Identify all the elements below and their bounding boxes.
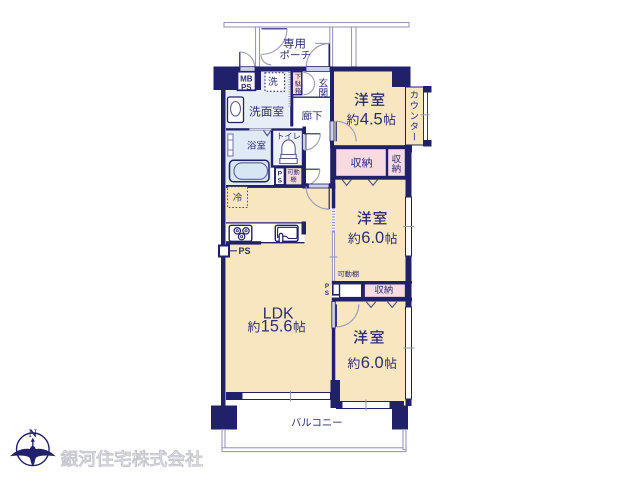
svg-text:PS: PS <box>241 83 252 92</box>
svg-text:PS: PS <box>239 246 251 256</box>
svg-text:S: S <box>278 178 283 185</box>
svg-text:P: P <box>325 283 329 290</box>
svg-text:S: S <box>325 290 329 297</box>
svg-text:6.0: 6.0 <box>361 229 384 247</box>
svg-text:N: N <box>29 428 38 440</box>
svg-text:15.6: 15.6 <box>261 318 293 336</box>
svg-text:4.5: 4.5 <box>360 110 383 128</box>
svg-text:P: P <box>278 171 283 178</box>
svg-text:6.0: 6.0 <box>361 354 384 372</box>
